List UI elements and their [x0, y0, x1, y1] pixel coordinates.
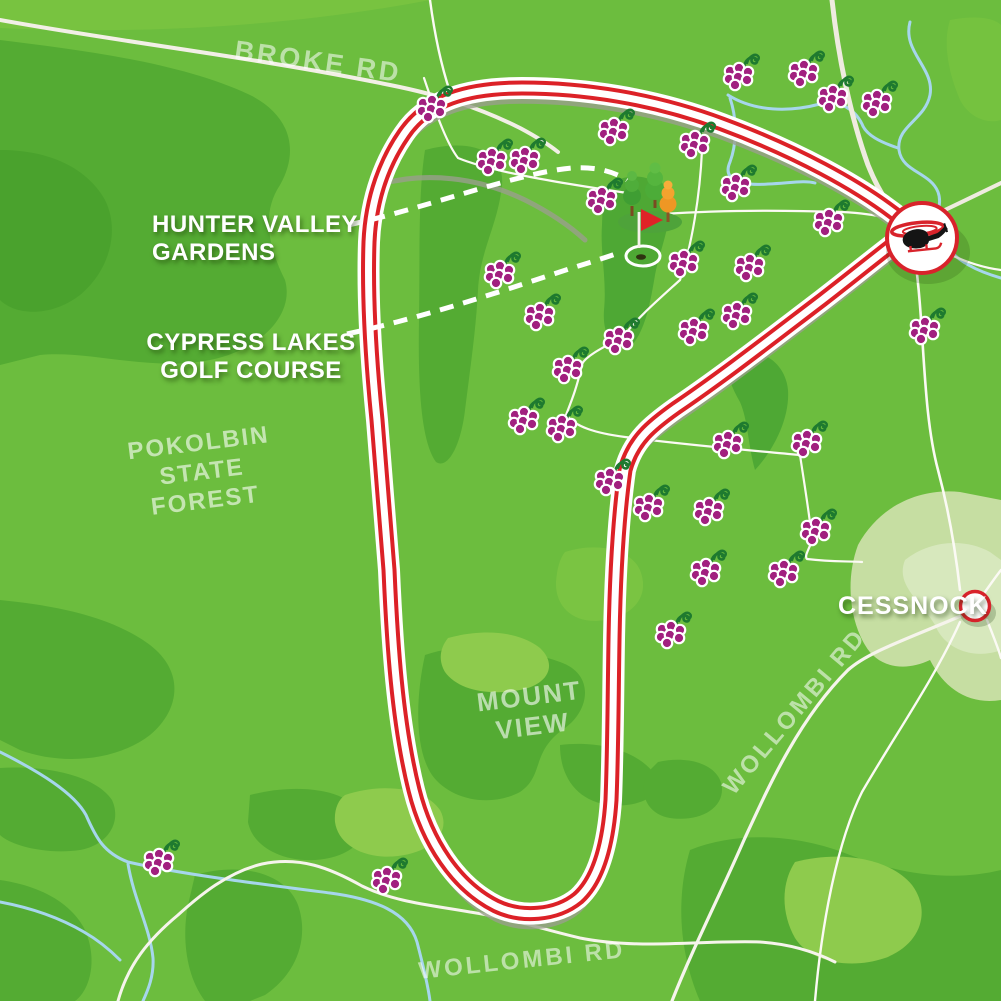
hunter-valley-gardens-label-line2: GARDENS: [152, 239, 358, 267]
golf-hole: [636, 254, 646, 260]
cypress-lakes-golf-label: CYPRESS LAKES GOLF COURSE: [146, 329, 355, 385]
pokolbin-state-forest-label: POKOLBIN STATE FOREST: [126, 420, 278, 524]
mount-view-label: MOUNT VIEW: [475, 675, 587, 747]
hunter-valley-gardens-label-line1: HUNTER VALLEY: [152, 211, 358, 239]
hunter-valley-map: BROKE RD HUNTER VALLEY GARDENS CYPRESS L…: [0, 0, 1001, 1001]
hunter-valley-gardens-label: HUNTER VALLEY GARDENS: [152, 211, 358, 267]
cypress-lakes-label-line1: CYPRESS LAKES: [146, 329, 355, 357]
cessnock-label: CESSNOCK: [838, 592, 988, 621]
cypress-lakes-label-line2: GOLF COURSE: [146, 357, 355, 385]
